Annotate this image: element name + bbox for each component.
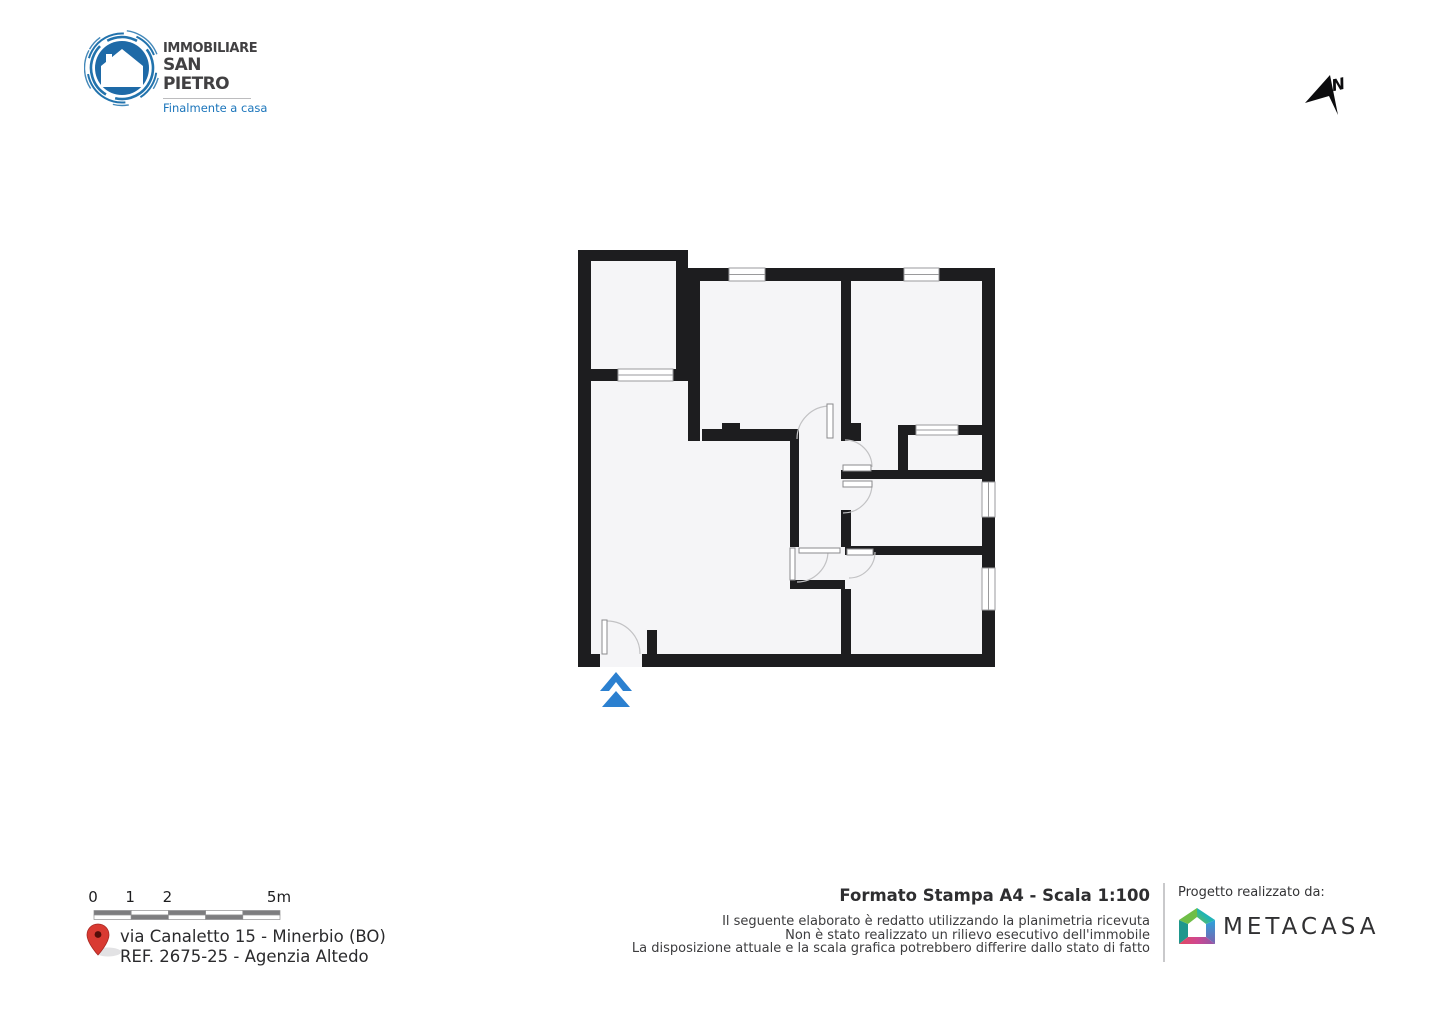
wall [688, 268, 729, 281]
wall [841, 510, 851, 547]
scale-segment [131, 911, 168, 916]
door-leaf [602, 620, 607, 654]
door-leaf [827, 404, 833, 438]
wall [578, 250, 591, 667]
scale-bar-labels: 0125m [0, 888, 320, 903]
wall [841, 423, 861, 441]
wall [790, 429, 799, 547]
north-arrow-icon: N [1295, 58, 1365, 128]
wall [578, 369, 618, 381]
wall [722, 423, 740, 441]
scale-mark-5m: 5m [267, 888, 291, 906]
footer-divider [1163, 883, 1165, 962]
scale-bar [93, 905, 280, 915]
agency-logo-icon [84, 28, 168, 108]
page: { "branding": { "line1": "IMMOBILIARE", … [0, 0, 1440, 1018]
floor-plan [575, 245, 1000, 715]
wall [578, 250, 688, 261]
print-info: Formato Stampa A4 - Scala 1:100 Il segue… [550, 886, 1150, 956]
agency-name-line1: IMMOBILIARE [163, 42, 259, 56]
scale-mark-0: 0 [88, 888, 98, 906]
wall [790, 580, 845, 589]
wall [578, 654, 600, 667]
agency-name-line2: SAN PIETRO [163, 56, 259, 94]
scale-mark-2: 2 [163, 888, 173, 906]
door-leaf [799, 548, 840, 553]
wall [982, 268, 995, 482]
wall [647, 630, 657, 654]
door-leaf [790, 548, 795, 580]
scale-segment [94, 915, 131, 920]
wall [688, 281, 700, 441]
wall [676, 261, 688, 381]
print-format-title: Formato Stampa A4 - Scala 1:100 [550, 886, 1150, 905]
door-leaf [843, 465, 871, 471]
agency-tagline: Finalmente a casa [163, 102, 259, 114]
scale-segment [243, 915, 280, 920]
wall [982, 517, 995, 568]
scale-segment [131, 915, 168, 920]
door-leaf [843, 481, 872, 487]
scale-segment [206, 911, 243, 916]
metacasa-brand-name: METACASA [1223, 914, 1380, 940]
scale-segment [206, 915, 243, 920]
scale-segment [94, 911, 131, 916]
disclaimer-line-1: Il seguente elaborato è redatto utilizza… [550, 915, 1150, 929]
entrance-arrow-icon [602, 691, 630, 707]
scale-segment [243, 911, 280, 916]
address-line: via Canaletto 15 - Minerbio (BO) [120, 927, 386, 947]
credits-label: Progetto realizzato da: [1178, 885, 1325, 900]
entrance-arrow-icon [600, 672, 632, 691]
metacasa-logo-icon [1175, 905, 1219, 951]
reference-line: REF. 2675-25 - Agenzia Altedo [120, 947, 386, 967]
scale-segment [168, 915, 205, 920]
wall [898, 425, 916, 435]
north-label: N [1330, 74, 1348, 95]
agency-brand-text: IMMOBILIARE SAN PIETRO Finalmente a casa [163, 42, 259, 114]
address-block: via Canaletto 15 - Minerbio (BO) REF. 26… [120, 927, 386, 966]
floor-area [578, 250, 995, 667]
wall [765, 268, 904, 281]
disclaimer-line-3: La disposizione attuale e la scala grafi… [550, 942, 1150, 956]
wall [673, 369, 688, 381]
wall [702, 429, 797, 441]
scale-mark-1: 1 [125, 888, 135, 906]
scale-segment [168, 911, 205, 916]
wall [642, 654, 995, 667]
wall [841, 589, 851, 654]
door-leaf [847, 549, 873, 555]
brand-separator [163, 98, 251, 99]
wall [841, 281, 851, 423]
disclaimer-line-2: Non è stato realizzato un rilievo esecut… [550, 929, 1150, 943]
wall [958, 425, 982, 435]
